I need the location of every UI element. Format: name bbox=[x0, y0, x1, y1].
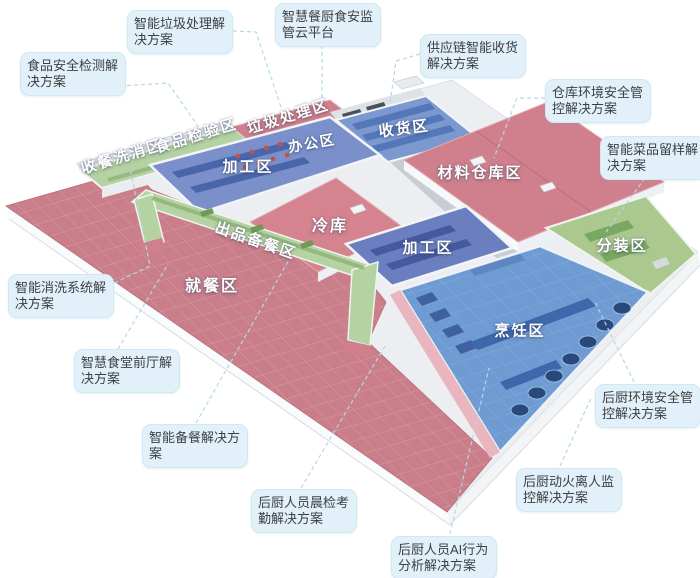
callout-smart-waste-disposal: 智能垃圾处理解决方案 bbox=[127, 10, 233, 54]
smart-canteen-floorplan: 收餐洗消区 食品检验区 垃圾处理区 办公区 收货区 加工区 材料仓库区 冷库 加… bbox=[0, 0, 700, 578]
callout-smart-meal-prep: 智能备餐解决方案 bbox=[142, 424, 248, 468]
callout-staff-morning-check: 后厨人员晨检考勤解决方案 bbox=[251, 489, 357, 533]
callout-smart-kitchen-cloud-platform: 智慧餐厨食安监管云平台 bbox=[275, 3, 381, 47]
callout-staff-ai-behavior: 后厨人员AI行为分析解决方案 bbox=[391, 536, 497, 578]
callout-kitchen-env-safety: 后厨环境安全管控解决方案 bbox=[595, 384, 700, 428]
callout-warehouse-env-safety: 仓库环境安全管控解决方案 bbox=[545, 79, 651, 123]
callout-smart-dish-sampling: 智能菜品留样解决方案 bbox=[600, 136, 700, 180]
callout-supply-chain-receiving: 供应链智能收货解决方案 bbox=[420, 34, 526, 78]
callout-food-safety-testing: 食品安全检测解决方案 bbox=[20, 52, 126, 96]
callout-canteen-front-hall: 智慧食堂前厅解决方案 bbox=[74, 349, 180, 393]
callout-smart-washing-system: 智能消洗系统解决方案 bbox=[8, 274, 114, 318]
callout-fire-unattended-monitoring: 后厨动火离人监控解决方案 bbox=[516, 468, 622, 512]
